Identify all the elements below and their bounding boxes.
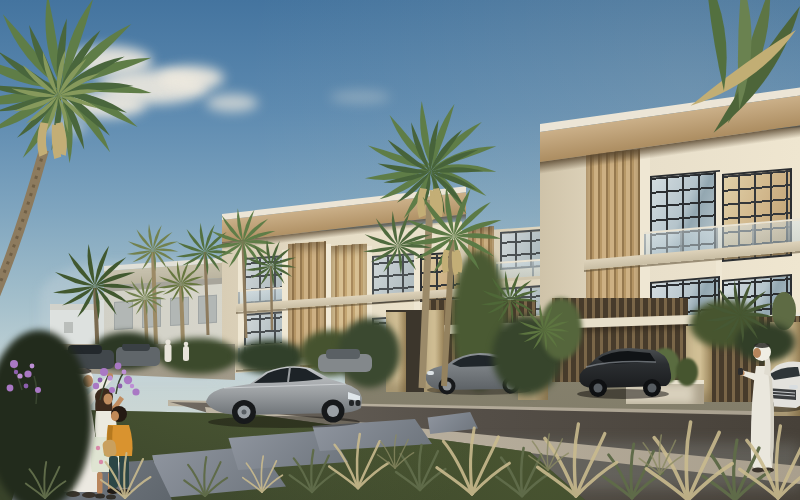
- palm-left: [0, 0, 154, 298]
- gap-palms: [481, 271, 570, 351]
- ornamental-grasses: [0, 400, 800, 500]
- rendered-streetscape: [0, 0, 800, 500]
- bushy-palm: [705, 280, 774, 343]
- palm-center: [363, 101, 503, 388]
- palm-right-fronds: [680, 0, 800, 134]
